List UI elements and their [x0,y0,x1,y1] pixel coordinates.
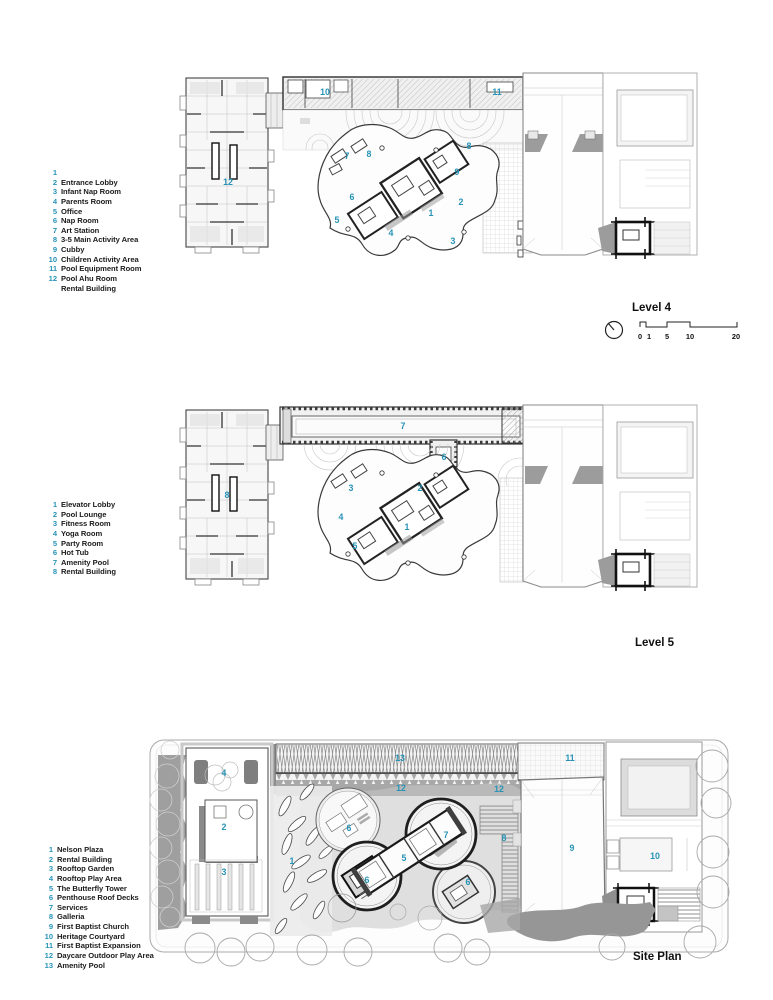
legend-label: Children Activity Area [61,255,139,265]
legend-row: 10Heritage Courtyard [40,932,154,942]
pool-equipment-bar [283,77,523,110]
legend-number: 4 [44,197,57,207]
legend-number: 2 [40,855,53,865]
legend-row: 12Pool Ahu Room [44,274,141,284]
legend-number: 12 [40,951,53,961]
legend-label: Services [57,903,88,913]
legend-label: Entrance Lobby [61,178,118,188]
legend-row: 11Pool Equipment Room [44,264,141,274]
level5-title: Level 5 [635,637,674,649]
legend-number: 1 [44,500,57,510]
legend-label: The Butterfly Tower [57,884,127,894]
legend-number: 3 [44,187,57,197]
legend-number: 3 [40,864,53,874]
legend-number: 5 [44,539,57,549]
legend-label: Pool Equipment Room [61,264,141,274]
legend-number [44,284,57,294]
legend-label: Fitness Room [61,519,111,529]
link-corridor [266,93,283,128]
legend-number: 8 [44,235,57,245]
legend-row: Rental Building [44,284,141,294]
legend-label: Rooftop Garden [57,864,114,874]
north-arrow-icon [606,322,623,339]
legend-number: 10 [40,932,53,942]
legend-label: Nelson Plaza [57,845,103,855]
legend-number: 5 [44,207,57,217]
legend-row: 5Office [44,207,141,217]
legend-label: Party Room [61,539,103,549]
legend-row: 4Yoga Room [44,529,116,539]
legend-row: 11First Baptist Expansion [40,941,154,951]
legend-row: 9Cubby [44,245,141,255]
legend-label: Amenity Pool [57,961,105,971]
legend-number: 8 [40,912,53,922]
legend-number: 13 [40,961,53,971]
legend-row: 5Party Room [44,539,116,549]
legend-number: 4 [40,874,53,884]
legend-row: 8Galleria [40,912,154,922]
legend-row: 10Children Activity Area [44,255,141,265]
legend-label: Daycare Outdoor Play Area [57,951,154,961]
scale-tick-label: 10 [686,332,694,341]
scale-bar [640,322,737,327]
legend-label: Elevator Lobby [61,500,115,510]
legend-number: 7 [44,558,57,568]
legend-label: Rental Building [57,855,112,865]
legend-number: 9 [40,922,53,932]
legend-row: 3Fitness Room [44,519,116,529]
legend-label: Penthouse Roof Decks [57,893,139,903]
legend-row: 5The Butterfly Tower [40,884,154,894]
legend-label: Office [61,207,82,217]
legend-row: 7Art Station [44,226,141,236]
legend-number: 6 [44,548,57,558]
legend-row: 13Amenity Pool [40,961,154,971]
legend-label: Nap Room [61,216,99,226]
legend-number: 4 [44,529,57,539]
legend-number: 7 [40,903,53,913]
legend-row: 6Penthouse Roof Decks [40,893,154,903]
site-plan-title: Site Plan [633,951,682,963]
legend-label: Heritage Courtyard [57,932,125,942]
legend-number: 6 [44,216,57,226]
scale-tick-label: 0 [638,332,642,341]
legend-row: 1 [44,168,141,178]
legend-number: 7 [44,226,57,236]
legend-row: 4Parents Room [44,197,141,207]
legend-label: Rental Building [61,567,116,577]
scale-tick-label: 20 [732,332,740,341]
legend-row: 8Rental Building [44,567,116,577]
north-arrow-and-scale-bar [595,312,745,342]
church-plan [523,405,697,591]
legend-number: 5 [40,884,53,894]
legend-number: 1 [44,168,57,178]
legend-label: Cubby [61,245,84,255]
legend-row: 2Rental Building [40,855,154,865]
legend-number: 3 [44,519,57,529]
site-plan-drawing [140,725,740,970]
legend-label: First Baptist Church [57,922,129,932]
church-plan [523,73,697,259]
legend-label: Hot Tub [61,548,89,558]
legend-label: Art Station [61,226,99,236]
legend-label: Amenity Pool [61,558,109,568]
legend-number: 12 [44,274,57,284]
legend-label: Infant Nap Room [61,187,121,197]
legend-row: 6Nap Room [44,216,141,226]
legend-row: 3Infant Nap Room [44,187,141,197]
scale-tick-label: 1 [647,332,651,341]
legend-label: Pool Lounge [61,510,106,520]
scale-tick-label: 5 [665,332,669,341]
level4-legend: 12Entrance Lobby3Infant Nap Room4Parents… [44,168,141,293]
legend-label: First Baptist Expansion [57,941,141,951]
legend-row: 2Pool Lounge [44,510,116,520]
legend-label: Rooftop Play Area [57,874,122,884]
legend-number: 8 [44,567,57,577]
legend-label: Rental Building [61,284,116,294]
legend-number: 11 [40,941,53,951]
legend-row: 4Rooftop Play Area [40,874,154,884]
legend-row: 3Rooftop Garden [40,864,154,874]
legend-label: Yoga Room [61,529,102,539]
level5-amenity-floor-plan [318,450,499,581]
legend-row: 12Daycare Outdoor Play Area [40,951,154,961]
level5-floor-plan-drawing [140,395,740,650]
legend-label: Galleria [57,912,84,922]
legend-row: 7Amenity Pool [44,558,116,568]
rental-building-plan [180,410,283,585]
legend-row: 9First Baptist Church [40,922,154,932]
church-roof [513,777,605,924]
site-plan-legend: 1Nelson Plaza2Rental Building3Rooftop Ga… [40,845,154,970]
rental-building-roof [182,744,272,924]
legend-row: 6Hot Tub [44,548,116,558]
amenity-pool-bar [280,407,533,444]
legend-number: 2 [44,510,57,520]
legend-label: 3-5 Main Activity Area [61,235,138,245]
legend-row: 1Nelson Plaza [40,845,154,855]
legend-row: 7Services [40,903,154,913]
legend-number: 11 [44,264,57,274]
legend-number: 2 [44,178,57,188]
level4-floor-plan-drawing [140,55,740,305]
legend-label: Pool Ahu Room [61,274,117,284]
architectural-drawing-sheet: 12Entrance Lobby3Infant Nap Room4Parents… [0,0,773,1000]
legend-number: 10 [44,255,57,265]
expansion-roof [518,743,604,780]
legend-number: 9 [44,245,57,255]
rental-building-plan [180,78,274,253]
legend-row: 2Entrance Lobby [44,178,141,188]
legend-number: 1 [40,845,53,855]
legend-row: 1Elevator Lobby [44,500,116,510]
level5-legend: 1Elevator Lobby2Pool Lounge3Fitness Room… [44,500,116,577]
legend-label: Parents Room [61,197,112,207]
legend-number: 6 [40,893,53,903]
legend-row: 83-5 Main Activity Area [44,235,141,245]
